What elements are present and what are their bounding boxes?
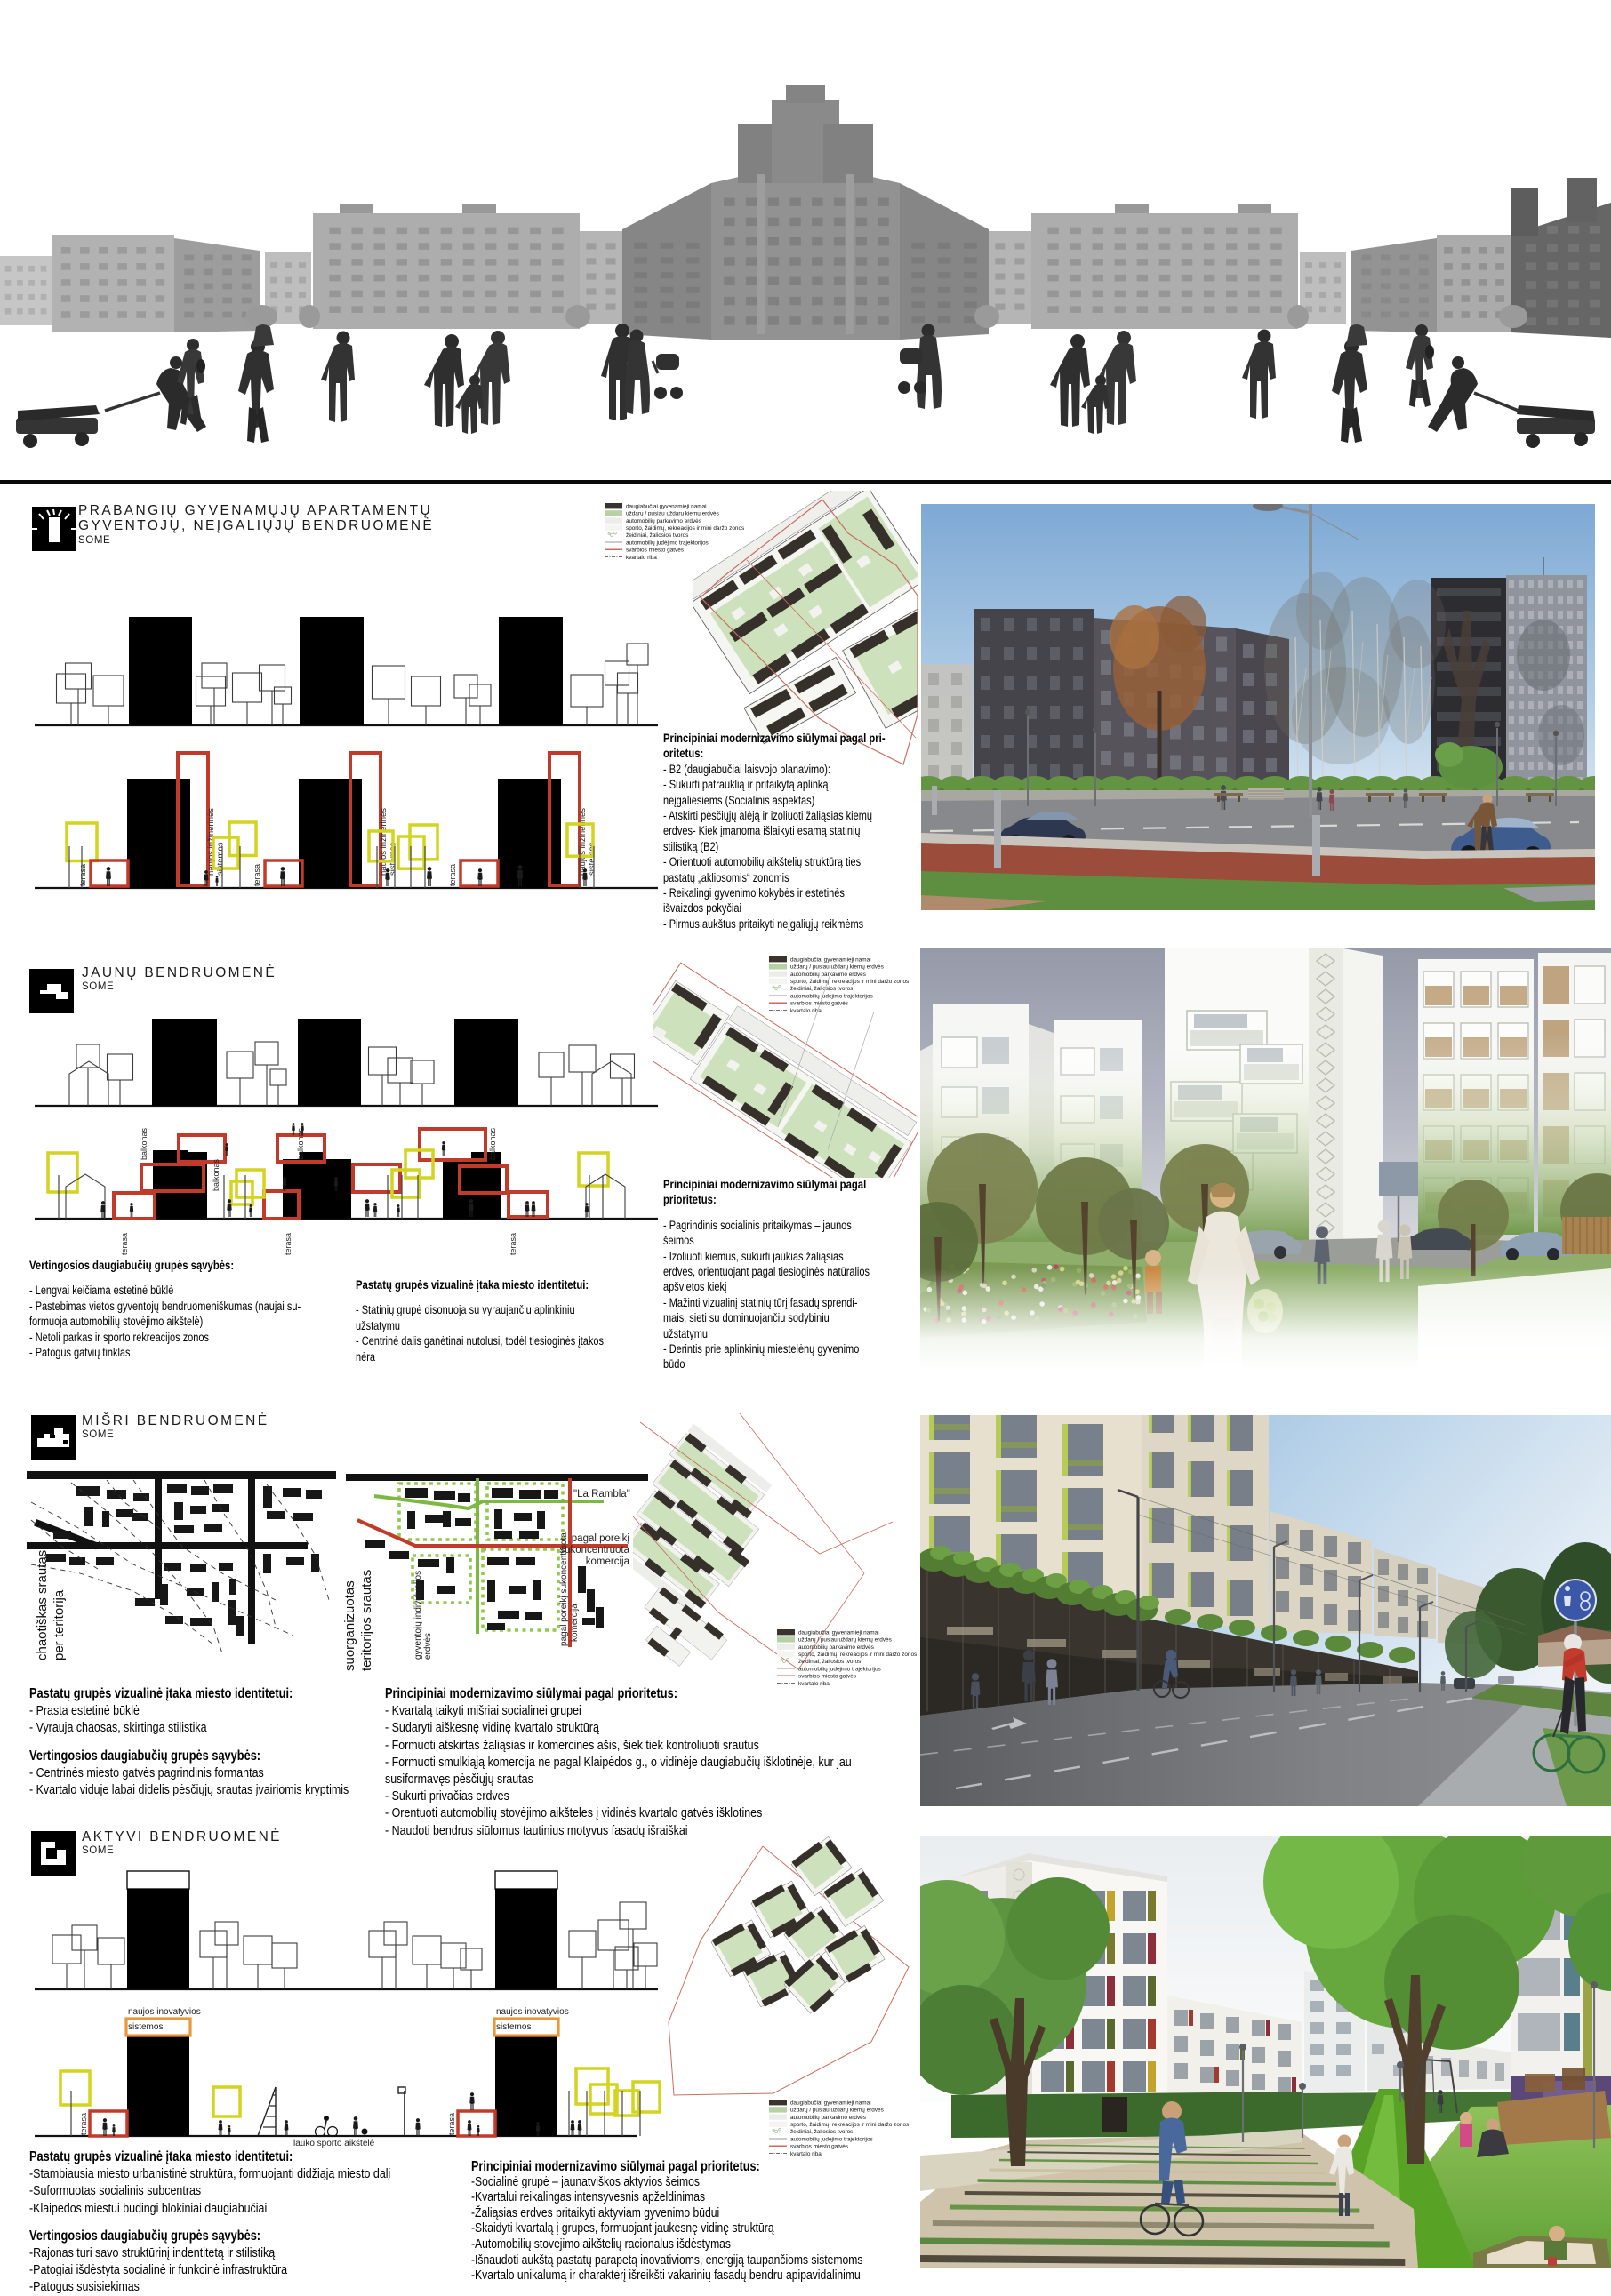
svg-text:automobilių parkavimo erdvės: automobilių parkavimo erdvės: [798, 1644, 874, 1651]
svg-text:terasa: terasa: [447, 2113, 456, 2135]
svg-text:pagal poreikį sukoncentruota: pagal poreikį sukoncentruota: [559, 1532, 569, 1646]
svg-text:automobilių parkavimo erdvės: automobilių parkavimo erdvės: [790, 2115, 866, 2121]
svg-text:žeidiniai, žaliosios tvoros: žeidiniai, žaliosios tvoros: [790, 2129, 853, 2135]
svg-text:kvartalo riba: kvartalo riba: [798, 1681, 830, 1687]
svg-text:sistemos: sistemos: [496, 2022, 531, 2032]
svg-text:naujos inžinerinės: naujos inžinerinės: [379, 808, 389, 876]
svg-text:komercija: komercija: [570, 1604, 580, 1642]
svg-text:suorganizuotas: suorganizuotas: [342, 1580, 357, 1671]
svg-text:terasa: terasa: [78, 864, 87, 886]
svg-text:balkonas: balkonas: [488, 1127, 497, 1160]
svg-text:uždarų / pusiau uždarų kiemų e: uždarų / pusiau uždarų kiemų erdvės: [790, 2108, 884, 2114]
svg-text:pagal poreikį: pagal poreikį: [572, 1533, 630, 1544]
svg-text:terasa: terasa: [120, 1233, 129, 1255]
svg-text:uždarų / pusiau uždarų kiemų e: uždarų / pusiau uždarų kiemų erdvės: [798, 1637, 892, 1644]
svg-text:sistemos: sistemos: [128, 2022, 163, 2032]
svg-text:daugiabučiai gyvenamieji namai: daugiabučiai gyvenamieji namai: [798, 1629, 879, 1636]
svg-text:automobilių judėjimo trajektor: automobilių judėjimo trajektorijos: [798, 1666, 881, 1672]
svg-text:sistemos: sistemos: [216, 842, 226, 876]
svg-text:chaotiškas srautas: chaotiškas srautas: [35, 1550, 50, 1660]
svg-text:naujos inovatyvios: naujos inovatyvios: [496, 2007, 569, 2017]
svg-text:gyventojų individualios: gyventojų individualios: [413, 1571, 423, 1660]
svg-text:erdvės: erdvės: [423, 1633, 433, 1660]
svg-text:sukoncentruota: sukoncentruota: [559, 1545, 629, 1556]
svg-text:per teritorija: per teritorija: [52, 1589, 67, 1660]
svg-text:svarbios miesto gatvės: svarbios miesto gatvės: [790, 2144, 848, 2150]
svg-text:terasa: terasa: [252, 864, 261, 886]
svg-text:svarbios miesto gatvės: svarbios miesto gatvės: [798, 1674, 856, 1680]
svg-text:sporto, žaidimų, rekreacijos i: sporto, žaidimų, rekreacijos ir mini dar…: [790, 2122, 909, 2128]
svg-text:balkonas: balkonas: [296, 1127, 305, 1160]
svg-text:terasa: terasa: [284, 1233, 293, 1255]
svg-text:terasa: terasa: [79, 2113, 88, 2135]
svg-text:terasa: terasa: [448, 864, 457, 886]
svg-text:žeidiniai, žaliosios tvoros: žeidiniai, žaliosios tvoros: [798, 1659, 861, 1665]
svg-text:"La Rambla": "La Rambla": [573, 1489, 630, 1500]
svg-text:kvartalo riba: kvartalo riba: [790, 2151, 822, 2157]
svg-text:balkonas: balkonas: [140, 1127, 148, 1160]
svg-text:automobilių judėjimo trajektor: automobilių judėjimo trajektorijos: [790, 2136, 873, 2142]
svg-text:daugiabučiai gyvenamieji namai: daugiabučiai gyvenamieji namai: [790, 2100, 871, 2106]
svg-text:naujos inovatyvios: naujos inovatyvios: [128, 2007, 201, 2017]
svg-text:sporto, žaidimų, rekreacijos i: sporto, žaidimų, rekreacijos ir mini dar…: [798, 1652, 917, 1658]
svg-text:komercija: komercija: [586, 1556, 630, 1567]
svg-text:teritorijos srautas: teritorijos srautas: [359, 1570, 374, 1671]
svg-text:terasa: terasa: [509, 1233, 517, 1255]
svg-text:lauko sporto aikštelė: lauko sporto aikštelė: [293, 2139, 375, 2148]
svg-text:balkonas: balkonas: [212, 1158, 220, 1191]
svg-text:automobilių parkavimo erdvės: automobilių parkavimo erdvės: [626, 518, 701, 524]
